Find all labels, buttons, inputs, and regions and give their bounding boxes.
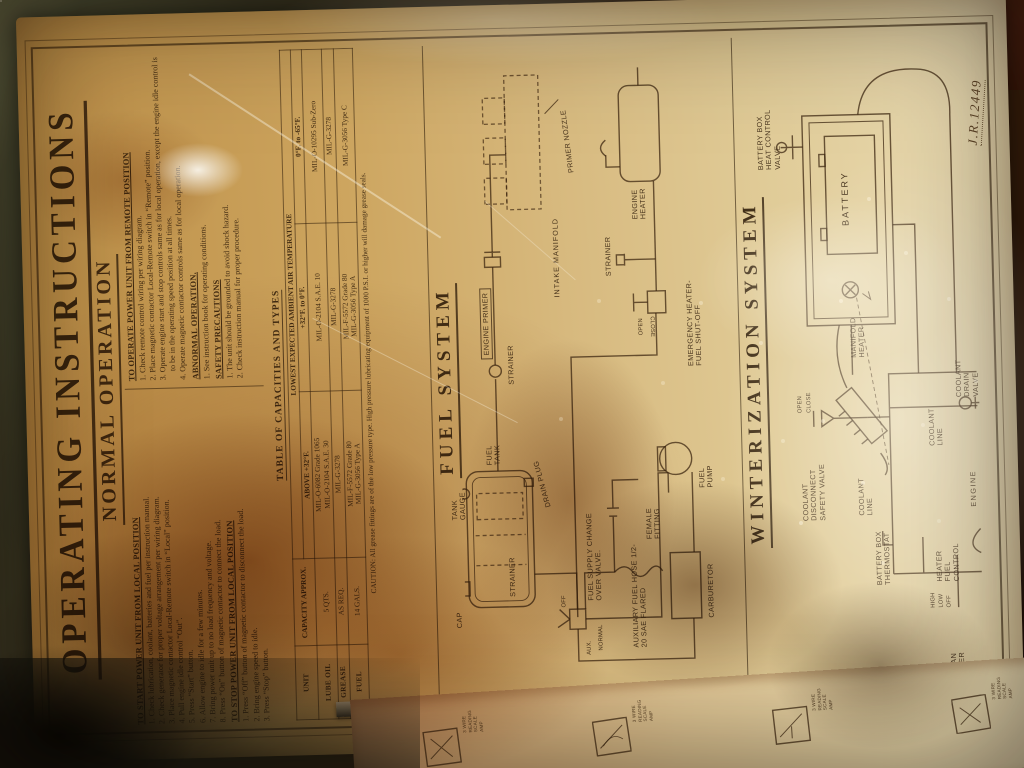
normal-operation-section: TO START POWER UNIT FROM LOCAL POSITION … xyxy=(116,46,435,725)
changeover-off-label: OFF xyxy=(561,595,568,607)
meter-diagram: 3 WIREREADING SCALEAMP xyxy=(951,683,1024,768)
winterization-diagram: BATTERY BATTERY BOX HEAT CONTROL VALVE B… xyxy=(760,32,989,708)
fuel-tank-label: FUEL TANK xyxy=(485,435,502,465)
heater-strainer-label: STRAINER xyxy=(604,237,613,277)
meter-diagram: 3 WIREREADING SCALEAMP xyxy=(422,716,547,768)
cell: MIL-F-5572 Grade 80MIL-G-3056 Type A xyxy=(338,222,362,390)
remote-column: TO OPERATE POWER UNIT FROM REMOTE POSITI… xyxy=(116,50,263,390)
changeover-aux-label: AUX. xyxy=(586,640,593,655)
heater-fuel-control-label: HEATER FUEL CONTROL xyxy=(935,537,961,582)
manifold-heater-label: MANIFOLD HEATER xyxy=(849,309,867,357)
fuel-system-section: FUEL SYSTEM xyxy=(422,38,748,717)
fuel-pump-label: FUEL PUMP xyxy=(698,457,715,487)
winterization-section: WINTERIZATION SYSTEM xyxy=(731,31,999,708)
tank-gauge-label: TANK GAUGE xyxy=(450,478,468,520)
low-label: LOW xyxy=(938,594,945,608)
open-label: OPEN xyxy=(638,318,645,335)
capacities-table-title: TABLE OF CAPACITIES AND TYPES xyxy=(271,290,287,481)
changeover-valve-label: FUEL SUPPLY CHANGE OVER VALVE. xyxy=(585,512,604,600)
col-capacity: CAPACITY APPROX. xyxy=(292,559,317,647)
meter-diagram: 3 WIREREADING SCALEAMP xyxy=(771,694,896,768)
cell: MIL-F-5572 Grade 80MIL-G-3056 Type A xyxy=(342,390,366,558)
emergency-shutoff-label: EMERGENCY HEATER-FUEL SHUT-OFF xyxy=(685,262,704,366)
battery-box-valve-label: BATTERY BOX HEAT CONTROL VALVE xyxy=(755,100,782,171)
carburetor-label: CARBURETOR xyxy=(706,563,716,617)
battery-label: BATTERY xyxy=(839,171,851,226)
capacities-table: UNIT CAPACITY APPROX. LOWEST EXPECTED AM… xyxy=(279,48,371,721)
placard-content: OPERATING INSTRUCTIONS NORMAL OPERATION … xyxy=(37,31,999,727)
female-fitting-label: FEMALE FITTING xyxy=(645,493,663,539)
close-label: CLOSE xyxy=(648,316,655,337)
coolant-line2-label: COOLANT LINE xyxy=(927,401,945,445)
cap-label: CAP xyxy=(456,612,465,628)
fuel-diagram-lines xyxy=(451,38,744,716)
normal-operation-heading: NORMAL OPERATION xyxy=(92,254,125,525)
meter-diagram: 3 WIREREADING SCALEAMP xyxy=(591,705,716,768)
engine-primer-label: ENGINE PRIMER xyxy=(479,289,493,360)
off-label: OFF xyxy=(946,595,953,607)
battery-box-thermostat-label: BATTERY BOX THERMOSTAT xyxy=(874,519,892,585)
high-label: HIGH xyxy=(930,592,937,607)
engine-label: ENGINE xyxy=(969,470,978,507)
paper-speckles xyxy=(0,0,2,2)
engine-heater-label: ENGINE HEATER xyxy=(631,185,648,219)
coolant-disconnect-label: COOLANT DISCONNECT SAFETY VALVE xyxy=(801,457,828,522)
instruction-placard: OPERATING INSTRUCTIONS NORMAL OPERATION … xyxy=(16,0,1024,762)
background-shadow xyxy=(0,658,420,768)
tank-strainer-label: STRAINER xyxy=(508,557,517,597)
cell: MIL-G-3056 Type C xyxy=(333,48,357,223)
photo-scene: OPERATING INSTRUCTIONS NORMAL OPERATION … xyxy=(0,0,1024,768)
cell: 5 QTS. xyxy=(315,558,337,646)
aux-hose-label: AUXILIARY FUEL HOSE 1/2-20 SAE FLARED xyxy=(630,543,649,647)
winter-close-label: CLOSE xyxy=(806,392,813,413)
fuel-system-diagram: ENGINE PRIMER STRAINER INTAKE MANIFOLD P… xyxy=(451,38,744,716)
winter-open-label: OPEN xyxy=(797,396,804,413)
coolant-line1-label: COOLANT LINE xyxy=(857,471,875,515)
coolant-drain-valve-label: COOLANT DRAIN VALVE xyxy=(954,348,980,397)
stamp-number: J.R.12449 xyxy=(965,79,986,146)
cell: 14 GALS. xyxy=(346,557,368,645)
changeover-normal-label: NORMAL xyxy=(598,624,605,650)
strainer-label: STRAINER xyxy=(507,345,516,385)
